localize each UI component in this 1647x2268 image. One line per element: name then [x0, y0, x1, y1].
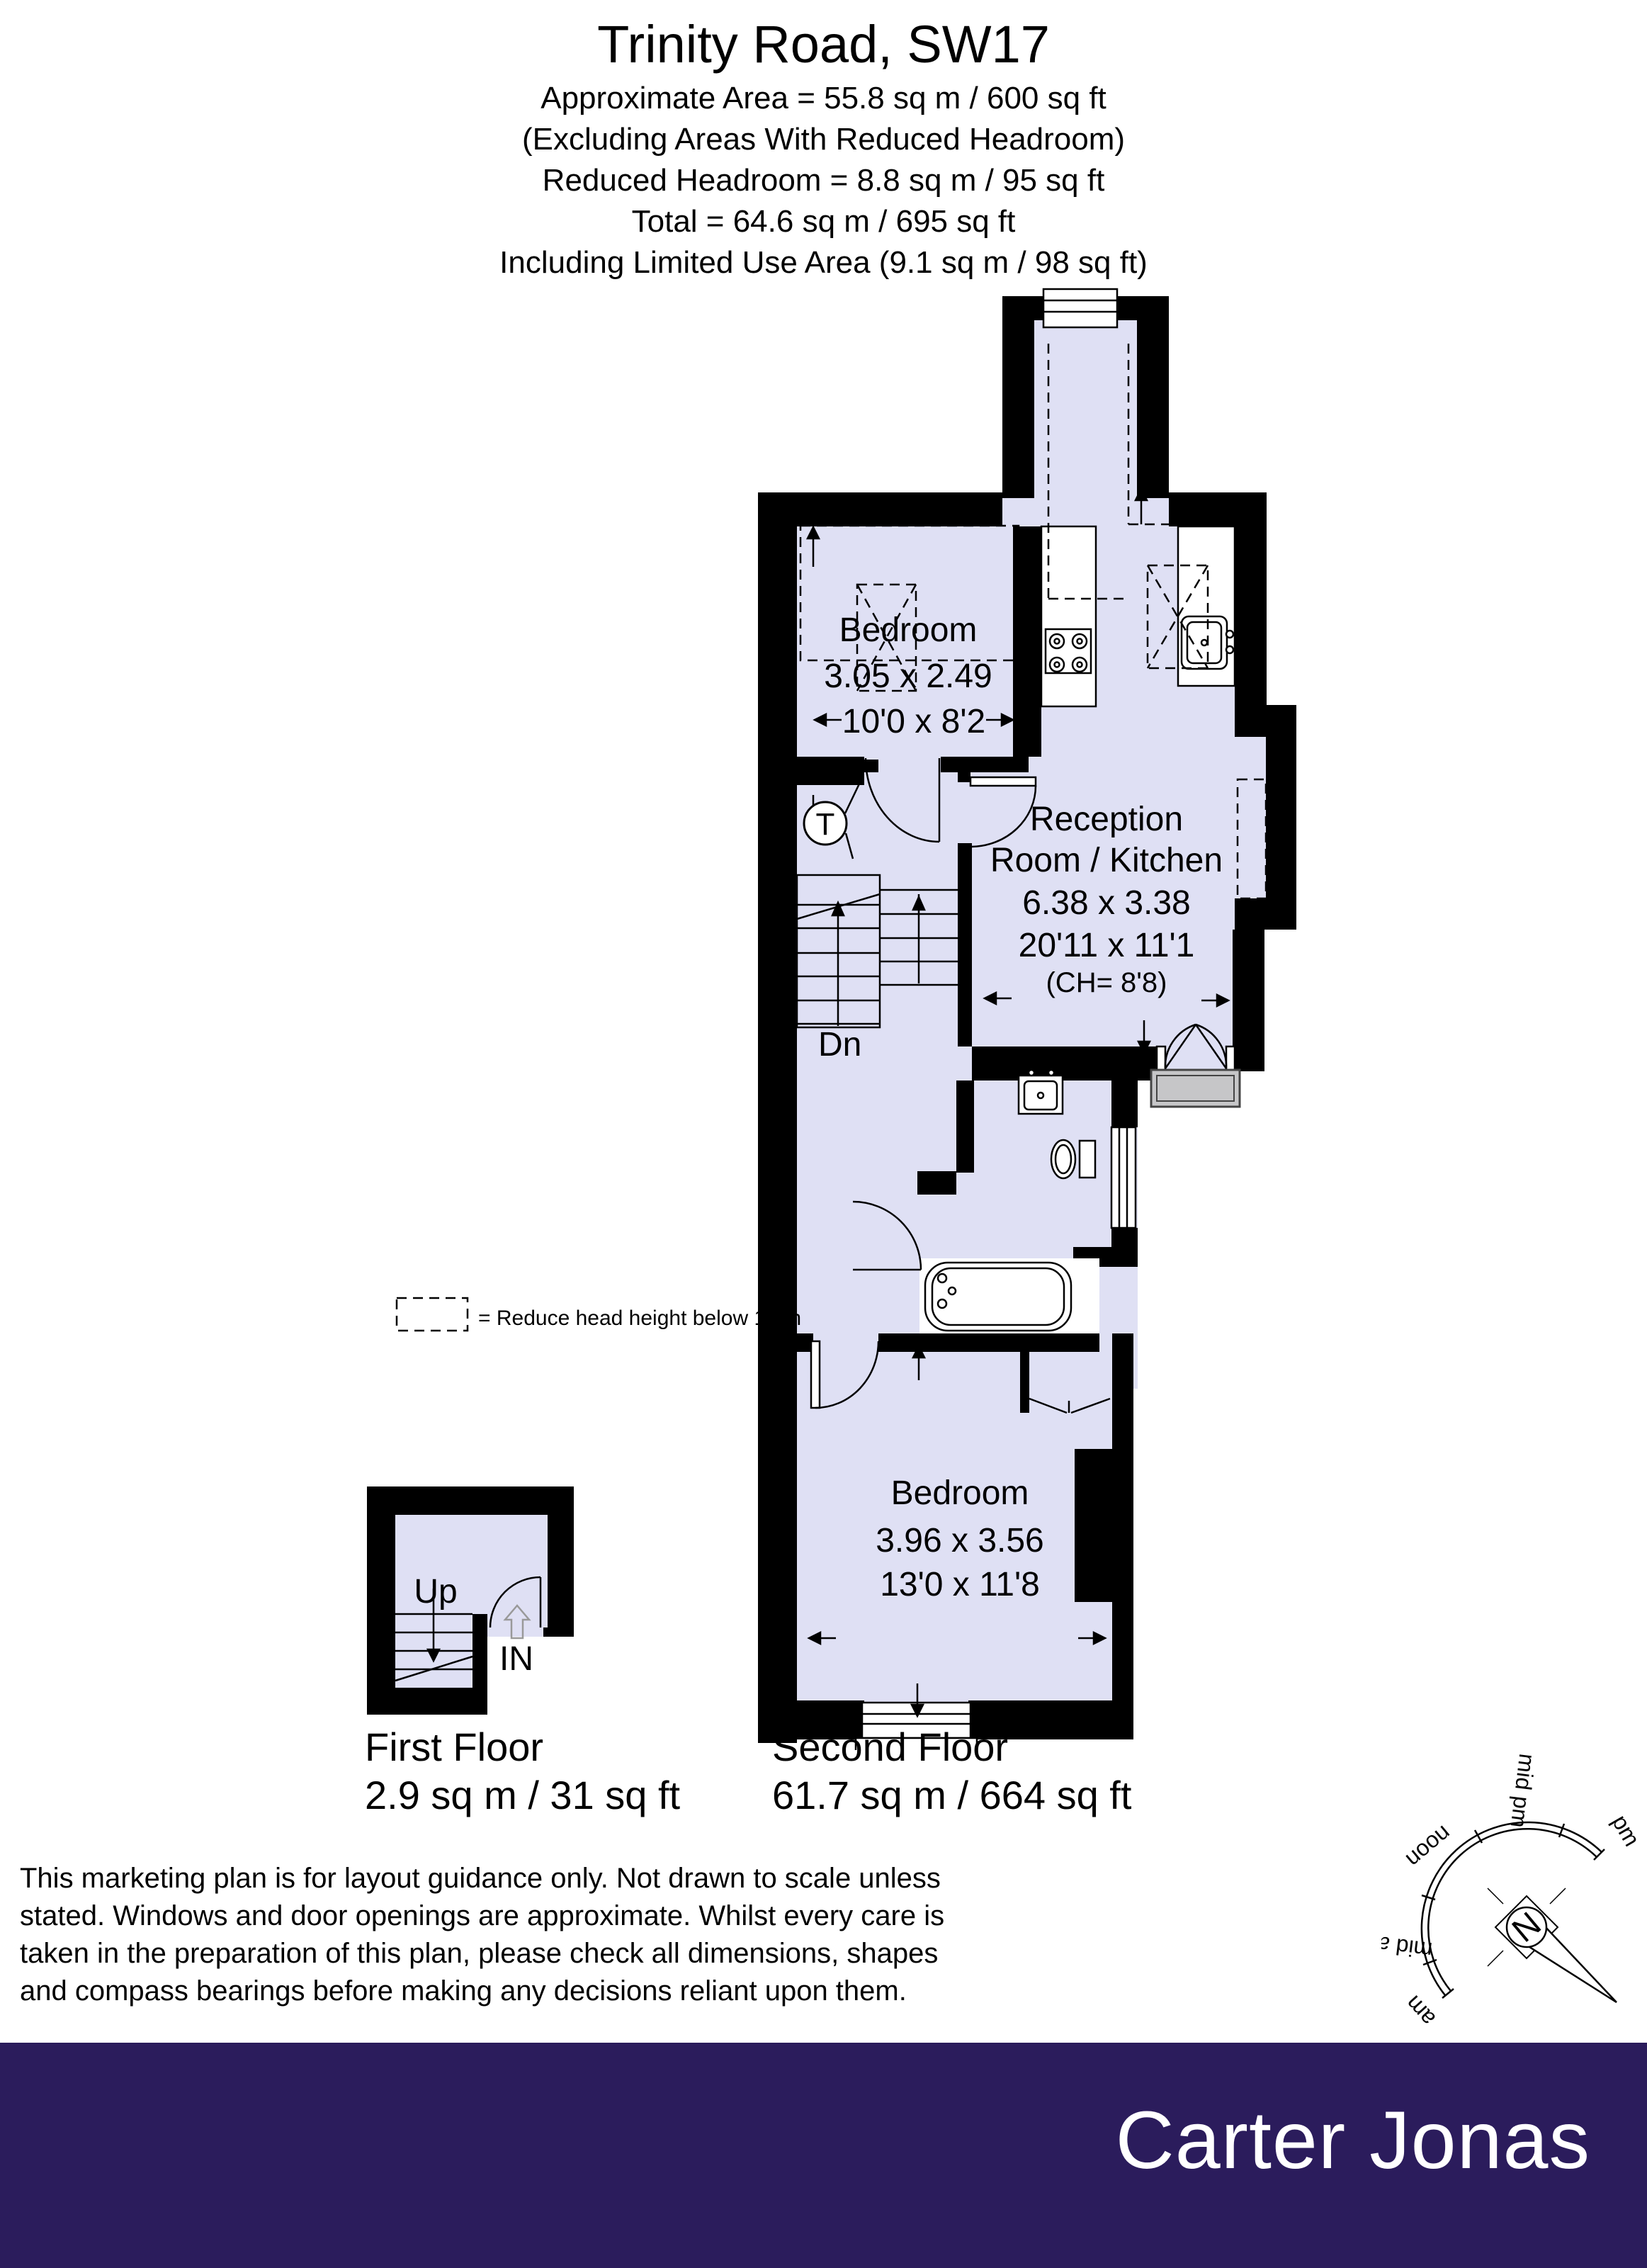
compass-label-noon: noon — [1401, 1821, 1456, 1873]
bedroom-bottom-imperial: 13'0 x 11'8 — [880, 1566, 1040, 1603]
bedroom-top-imperial: 10'0 x 8'2 — [842, 703, 985, 740]
first-floor-caption: First Floor 2.9 sq m / 31 sq ft — [365, 1723, 680, 1820]
disclaimer-line: taken in the preparation of this plan, p… — [20, 1935, 944, 1973]
disclaimer-line: stated. Windows and door openings are ap… — [20, 1897, 944, 1935]
area-summary: Approximate Area = 55.8 sq m / 600 sq ft… — [0, 78, 1647, 283]
kitchen-counter-left — [1041, 526, 1096, 706]
second-floor-caption: Second Floor 61.7 sq m / 664 sq ft — [772, 1723, 1131, 1820]
brand-logo: Carter Jonas — [1116, 2094, 1590, 2187]
compass-label-mid-am: mid am — [1381, 1929, 1434, 1964]
entrance-label: IN — [499, 1640, 533, 1678]
stairs-up-label: Up — [414, 1573, 457, 1610]
stairs-down-label: Dn — [818, 1026, 861, 1064]
kitchen-counter-right — [1178, 526, 1235, 686]
footer-bar: Carter Jonas — [0, 2043, 1647, 2268]
bathroom-window — [1111, 1127, 1136, 1228]
reception-label-2: Room / Kitchen — [990, 842, 1223, 879]
dormer-window — [1043, 289, 1117, 327]
compass-label-mid-pm: mid pm — [1506, 1752, 1541, 1829]
reception-label-1: Reception — [1030, 801, 1183, 838]
floor-plan: Bedroom 3.05 x 2.49 10'0 x 8'2 Reception… — [354, 283, 1360, 1750]
bathtub — [919, 1258, 1099, 1333]
area-line-total: Total = 64.6 sq m / 695 sq ft — [0, 201, 1647, 242]
area-line-reduced: Reduced Headroom = 8.8 sq m / 95 sq ft — [0, 160, 1647, 201]
bedroom-top-label: Bedroom — [839, 611, 978, 649]
reception-ceiling-height: (CH= 8'8) — [1046, 967, 1167, 998]
second-floor-area: 61.7 sq m / 664 sq ft — [772, 1771, 1131, 1820]
bedroom-top-metric: 3.05 x 2.49 — [824, 658, 992, 695]
first-floor-area: 2.9 sq m / 31 sq ft — [365, 1771, 680, 1820]
balcony — [1151, 1070, 1240, 1107]
area-line-limited: Including Limited Use Area (9.1 sq m / 9… — [0, 242, 1647, 283]
tank-label: T — [816, 807, 835, 842]
compass-label-pm: pm — [1607, 1810, 1645, 1850]
second-floor-label: Second Floor — [772, 1723, 1131, 1771]
disclaimer-line: and compass bearings before making any d… — [20, 1973, 944, 2010]
french-door-jamb — [1157, 1046, 1165, 1072]
compass: pm mid pm noon mid am am N — [1381, 1750, 1647, 2041]
page-title: Trinity Road, SW17 — [0, 14, 1647, 74]
bedroom-bottom-metric: 3.96 x 3.56 — [876, 1522, 1044, 1559]
bathroom-sink — [1019, 1070, 1063, 1114]
disclaimer: This marketing plan is for layout guidan… — [20, 1860, 944, 2010]
legend-swatch — [397, 1298, 468, 1331]
compass-label-am: am — [1400, 1991, 1440, 2031]
french-door-jamb — [1226, 1046, 1235, 1072]
reception-imperial: 20'11 x 11'1 — [1019, 927, 1195, 964]
legend-text: = Reduce head height below 1.5m — [478, 1307, 801, 1330]
disclaimer-line: This marketing plan is for layout guidan… — [20, 1860, 944, 1897]
first-floor-label: First Floor — [365, 1723, 680, 1771]
reception-metric: 6.38 x 3.38 — [1022, 884, 1191, 922]
area-line-excluding: (Excluding Areas With Reduced Headroom) — [0, 119, 1647, 160]
area-line-approximate: Approximate Area = 55.8 sq m / 600 sq ft — [0, 78, 1647, 119]
bedroom-bottom-label: Bedroom — [891, 1474, 1029, 1512]
